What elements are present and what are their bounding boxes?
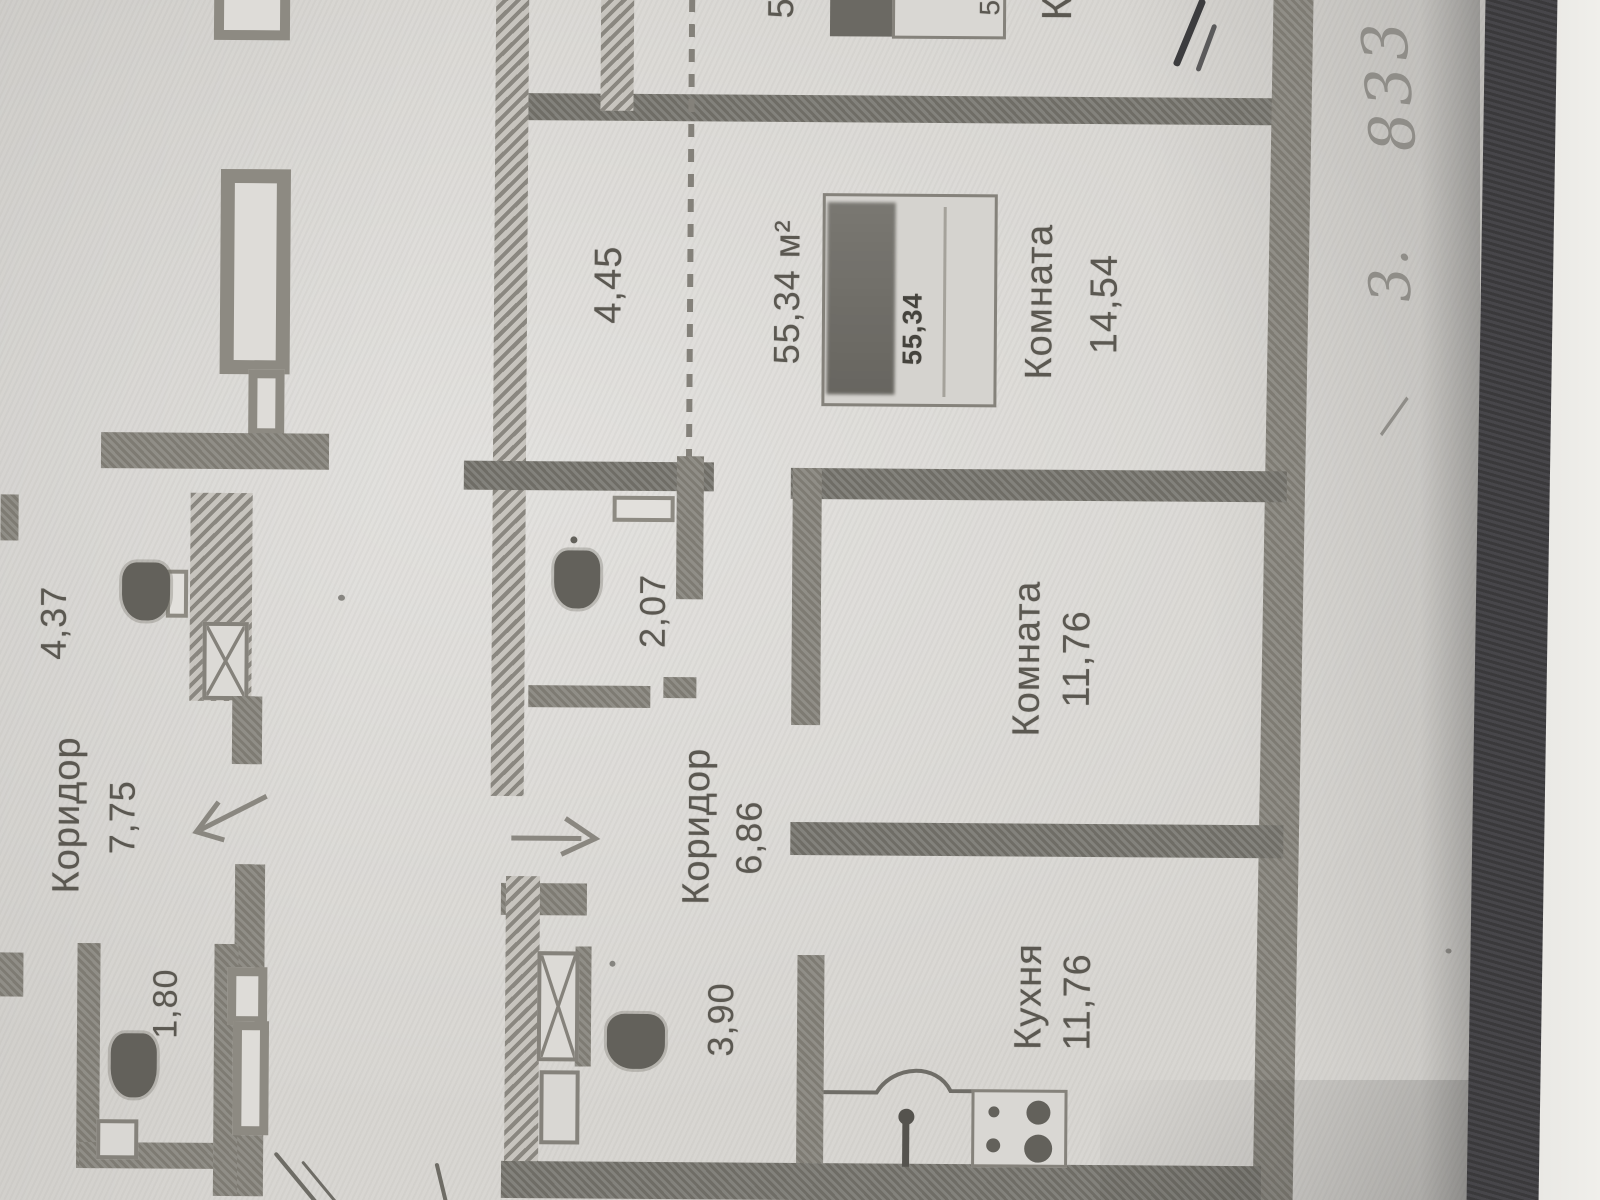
wall [232,696,262,764]
photographed-floor-plan: 55,34 Коридор 4,37 7,75 1,80 4,45 2,07 К… [0,0,1600,1200]
vent-shaft-box [537,951,580,1061]
door-leaf [613,496,675,522]
handwritten-number: 833 [1347,13,1431,155]
toilet-icon [122,562,170,620]
toilet-icon [607,1014,665,1069]
wall-rooms-divider [791,468,1287,502]
area-wc-left: 1,80 [146,968,185,1038]
pen-stroke [1195,24,1217,73]
handwritten-prefix: 3. [1356,247,1425,305]
burner-small [986,1138,1000,1152]
shaft-box [539,1070,580,1144]
area-room-large: 14,54 [1083,254,1127,354]
area-wc: 2,07 [632,574,675,648]
entrance-arrow-icon [178,784,273,847]
stamp-box: 55,34 [821,193,997,407]
room-label-large: Комната [1018,224,1062,380]
pipe-dot [570,536,577,543]
handwritten-dash: — [1353,377,1429,451]
wall-kitchen-top [790,822,1283,858]
wall-corridor-right [791,468,822,725]
window-segment [220,169,291,374]
wall-right-exterior [1252,0,1313,1200]
section-boundary-dashed [686,0,695,496]
burner-large [1024,1135,1052,1163]
pencil-mark [435,1163,450,1200]
wall-left-bearing [491,0,530,796]
wall-left-lower [504,876,540,1198]
stamp-smudge [826,202,895,394]
wall [0,494,18,540]
stamp-area-value: 55,34 [897,292,929,365]
room-label-corridor: Коридор [675,748,719,905]
area-corridor-left: 7,75 [101,780,144,854]
floor-plan-drawing: 55,34 Коридор 4,37 7,75 1,80 4,45 2,07 К… [0,0,1600,1200]
wall-stub-top [600,0,634,111]
vent-shaft-box [202,622,249,700]
wall [101,432,329,470]
corner-shadow [1100,1080,1500,1200]
cut-number: 5 [760,0,802,19]
window-segment [227,967,267,1025]
room-label-kitchen: Кухня [1007,943,1051,1050]
dim-hall: 4,45 [587,246,631,324]
paper-speck [338,595,345,601]
room-label-corridor-left: Коридор [45,736,89,893]
wall-wc-right [676,456,704,599]
window-segment [214,0,290,40]
entrance-arrow-icon [503,810,613,866]
stamp-line [942,207,946,397]
cut-letter: К [1033,0,1081,21]
total-area: 55,34 м² [766,219,809,364]
wall-wc-bottom [528,685,650,708]
area-corridor: 6,86 [728,800,771,874]
burner-small [988,1106,999,1117]
burner-large [1026,1101,1050,1125]
dim-corridor-left-length: 4,37 [33,586,76,660]
area-kitchen: 11,76 [1056,953,1100,1051]
wall [0,952,24,996]
cut-number: 5 [974,0,1006,16]
area-bathroom: 3,90 [700,982,743,1056]
area-room-mid: 11,76 [1056,610,1100,708]
room-label-mid: Комната [1006,581,1050,737]
wall-wc-stub [663,677,696,698]
toilet-icon [554,550,600,608]
dark-block-cut [830,0,892,37]
toilet-icon [111,1033,157,1097]
stove-icon [971,1089,1068,1168]
window-segment [248,369,284,437]
sink-icon [96,1119,138,1159]
paper-speck [609,961,615,967]
window-segment [232,1021,269,1135]
